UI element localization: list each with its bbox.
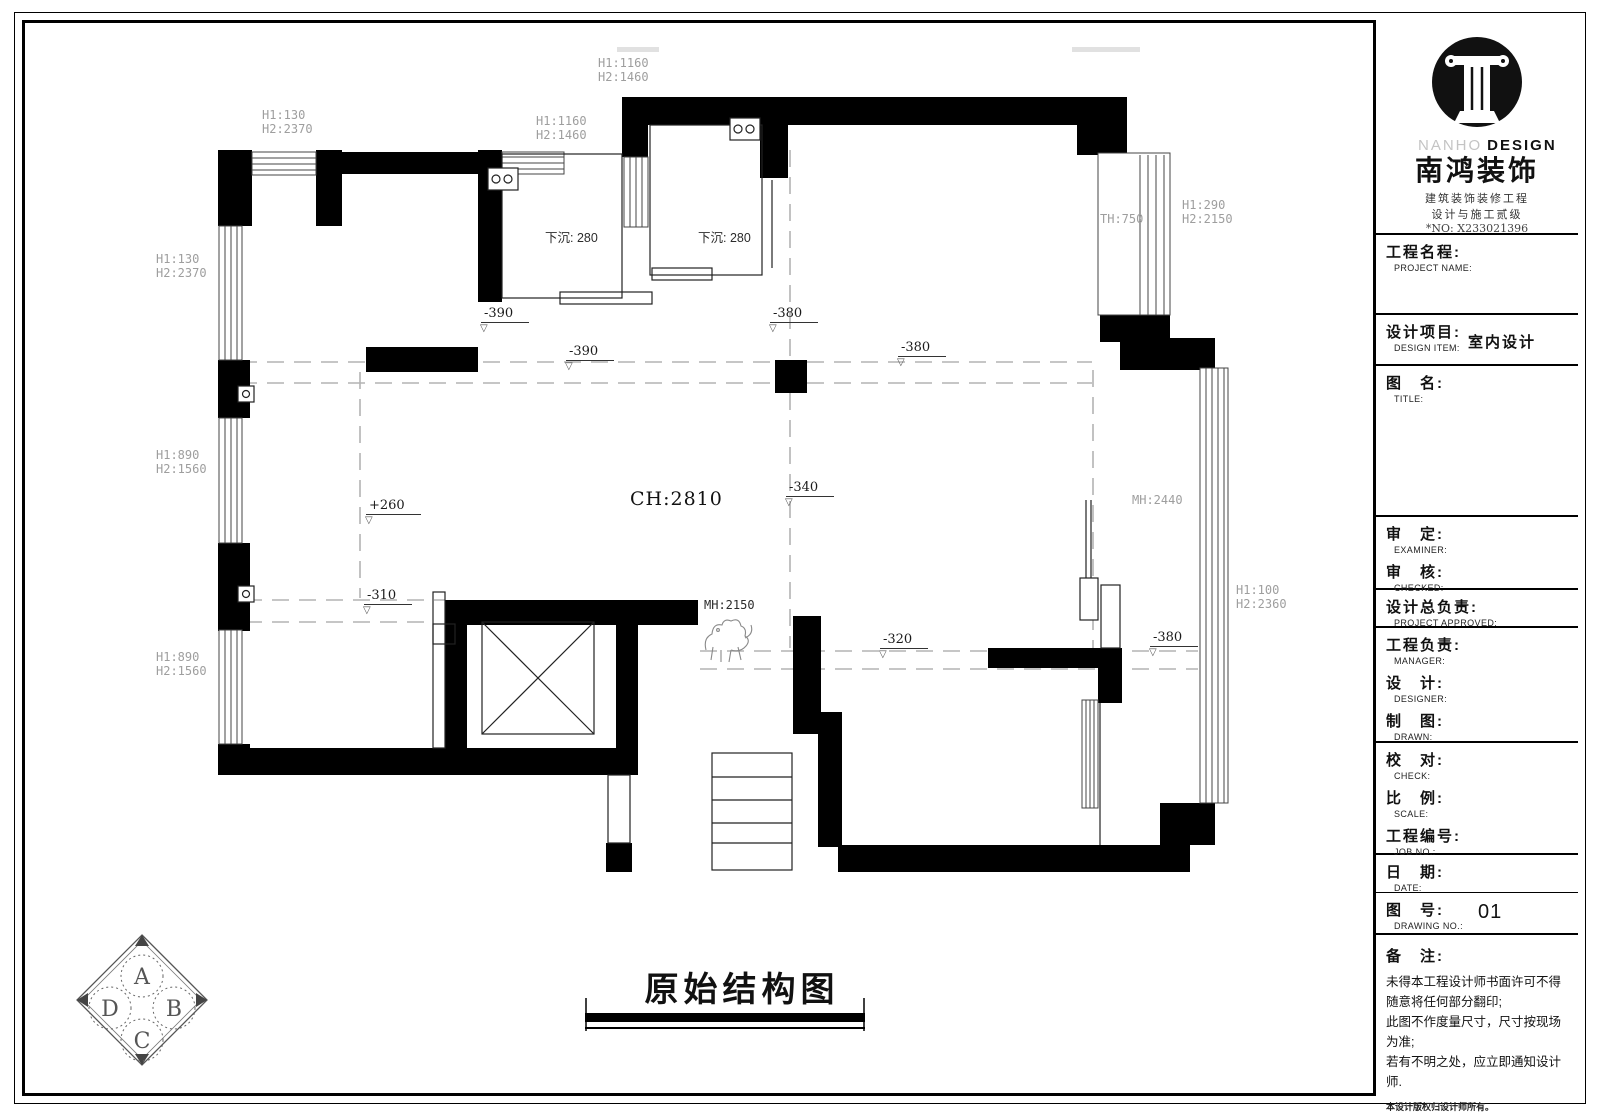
svg-text:NANHODESIGN: NANHODESIGN [1418, 137, 1557, 154]
titleblock-drawing-no: 图 号:DRAWING NO.: 01 [1376, 893, 1578, 935]
field-label: 设计总负责: [1386, 596, 1570, 617]
field-sublabel: PROJECT NAME: [1394, 263, 1570, 273]
level-label: -320 [880, 632, 928, 649]
dog-sketch [705, 620, 752, 662]
level-label: -390 [481, 306, 529, 323]
sill-height-label: TH:750 [1100, 212, 1143, 226]
remarks-line: 师. [1386, 1072, 1570, 1092]
window-height-label: H1:890H2:1560 [156, 448, 207, 476]
remarks-fine-print: 本设计版权归设计师所有。 [1386, 1100, 1570, 1113]
remarks-line: 此图不作度量尺寸，尺寸按现场 [1386, 1012, 1570, 1032]
field-label: 日 期: [1386, 861, 1570, 882]
level-label: +260 [366, 498, 421, 515]
clipped-top-marks [617, 47, 1140, 52]
titleblock-project-name: 工程名程:PROJECT NAME: [1376, 235, 1578, 315]
diamond-letter-a: A [133, 965, 151, 990]
diamond-letter-b: B [166, 997, 182, 1022]
drawing-title: 原始结构图 [612, 962, 872, 1011]
diamond-letter-d: D [101, 997, 119, 1022]
window-height-label: H1:130H2:2370 [156, 252, 207, 280]
walls-layer [218, 97, 1215, 872]
window-height-label: H1:290H2:2150 [1182, 198, 1233, 226]
field-sublabel: DATE: [1394, 883, 1570, 893]
window-height-label: H1:1160H2:1460 [598, 56, 649, 84]
titleblock-design-item: 设计项目:DESIGN ITEM: 室内设计 [1376, 315, 1578, 366]
titleblock-manager-designer-drawn: 工程负责:MANAGER: 设 计:DESIGNER: 制 图:DRAWN: [1376, 628, 1578, 743]
field-sublabel: CHECK: [1394, 771, 1570, 781]
design-item-value: 室内设计 [1468, 331, 1536, 352]
field-label: 工程编号: [1386, 825, 1570, 846]
sunken-floor-label: 下沉: 280 [545, 231, 598, 245]
titleblock-examiner-checked: 审 定:EXAMINER: 审 核:CHECKED: [1376, 517, 1578, 590]
titleblock-date: 日 期:DATE: [1376, 855, 1578, 893]
field-sublabel: SCALE: [1394, 809, 1570, 819]
door-height-label: MH:2440 [1132, 493, 1183, 507]
diamond-letter-c: C [134, 1029, 151, 1054]
field-label: 校 对: [1386, 749, 1570, 770]
door-height-label: MH:2150 [704, 598, 755, 612]
level-label: -380 [898, 340, 946, 357]
level-label: -390 [566, 344, 614, 361]
level-label: -380 [1150, 630, 1198, 647]
sunken-floor-label: 下沉: 280 [698, 231, 751, 245]
titleblock-check-scale-jobno: 校 对:CHECK: 比 例:SCALE: 工程编号:JOB NO.: [1376, 743, 1578, 855]
remarks-line: 若有不明之处，应立即通知设计 [1386, 1052, 1570, 1072]
level-label: -340 [786, 480, 834, 497]
svg-text:*NO: X233021396: *NO: X233021396 [1426, 222, 1528, 233]
floor-plan-drawing: A B C D [0, 0, 1600, 1119]
level-label: -380 [770, 306, 818, 323]
window-height-label: H1:130H2:2370 [262, 108, 313, 136]
drawing-sheet: A B C D H1:1160H2:1460 H1:1160H2:1460 H1… [0, 0, 1600, 1119]
field-sublabel: EXAMINER: [1394, 545, 1570, 555]
company-logo-box: NANHODESIGN 南鸿装饰 建筑装饰装修工程 设计与施工贰级 *NO: X… [1376, 20, 1578, 235]
field-label: 制 图: [1386, 710, 1570, 731]
field-sublabel: DESIGNER: [1394, 694, 1570, 704]
titleblock-remarks: 备 注: 未得本工程设计师书面许可不得 随意将任何部分翻印; 此图不作度量尺寸，… [1376, 935, 1578, 1096]
window-height-label: H1:1160H2:1460 [536, 114, 587, 142]
orientation-diamond: A B C D [77, 935, 207, 1065]
title-block: NANHODESIGN 南鸿装饰 建筑装饰装修工程 设计与施工贰级 *NO: X… [1373, 20, 1578, 1096]
field-label: 工程名程: [1386, 241, 1570, 262]
drawing-number-value: 01 [1478, 901, 1502, 924]
window-height-label: H1:100H2:2360 [1236, 583, 1287, 611]
remarks-line: 为准; [1386, 1032, 1570, 1052]
remarks-title: 备 注: [1386, 945, 1570, 966]
windows-layer [219, 152, 1228, 808]
field-label: 图 名: [1386, 372, 1570, 393]
svg-text:南鸿装饰: 南鸿装饰 [1415, 155, 1539, 186]
field-sublabel: DRAWN: [1394, 732, 1570, 742]
company-logo: NANHODESIGN 南鸿装饰 建筑装饰装修工程 设计与施工贰级 *NO: X… [1376, 20, 1578, 233]
titleblock-drawing-name: 图 名:TITLE: [1376, 366, 1578, 517]
svg-text:建筑装饰装修工程: 建筑装饰装修工程 [1425, 191, 1529, 205]
ceiling-height-label: CH:2810 [630, 488, 723, 510]
field-label: 设 计: [1386, 672, 1570, 693]
field-sublabel: TITLE: [1394, 394, 1570, 404]
svg-text:设计与施工贰级: 设计与施工贰级 [1432, 207, 1523, 221]
field-sublabel: PROJECT APPROVED: [1394, 618, 1570, 628]
field-label: 审 核: [1386, 561, 1570, 582]
level-label: -310 [364, 588, 412, 605]
window-height-label: H1:890H2:1560 [156, 650, 207, 678]
field-label: 审 定: [1386, 523, 1570, 544]
field-sublabel: MANAGER: [1394, 656, 1570, 666]
remarks-line: 随意将任何部分翻印; [1386, 992, 1570, 1012]
titleblock-project-approved: 设计总负责:PROJECT APPROVED: [1376, 590, 1578, 628]
field-label: 比 例: [1386, 787, 1570, 808]
field-label: 工程负责: [1386, 634, 1570, 655]
remarks-line: 未得本工程设计师书面许可不得 [1386, 972, 1570, 992]
